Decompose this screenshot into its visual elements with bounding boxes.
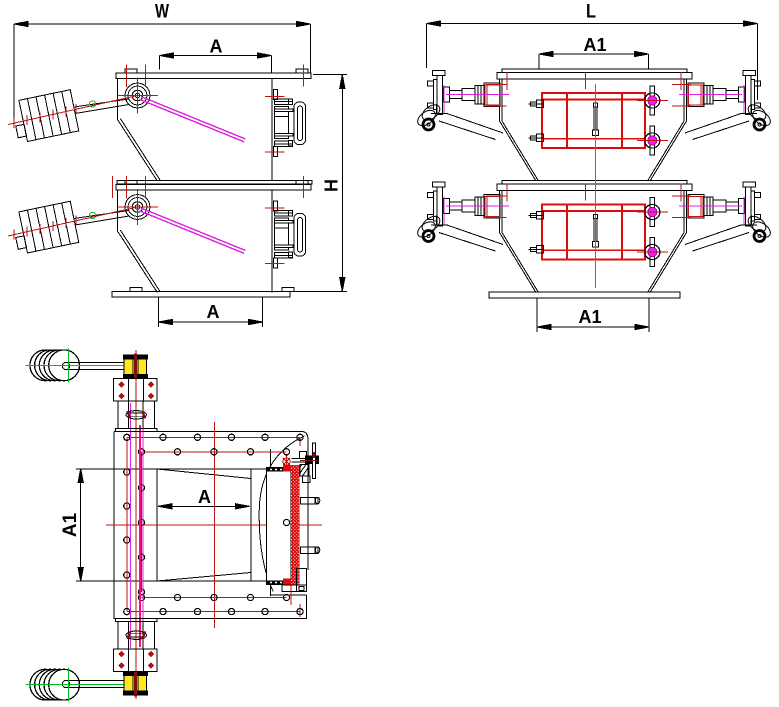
svg-text:W: W xyxy=(155,2,169,23)
svg-text:A1: A1 xyxy=(60,512,81,537)
svg-text:A1: A1 xyxy=(578,307,601,327)
svg-text:A: A xyxy=(210,37,223,57)
svg-text:A: A xyxy=(207,302,220,322)
svg-text:H: H xyxy=(322,179,342,192)
svg-text:A1: A1 xyxy=(583,35,606,55)
svg-text:A: A xyxy=(198,487,211,507)
svg-text:L: L xyxy=(586,2,596,23)
